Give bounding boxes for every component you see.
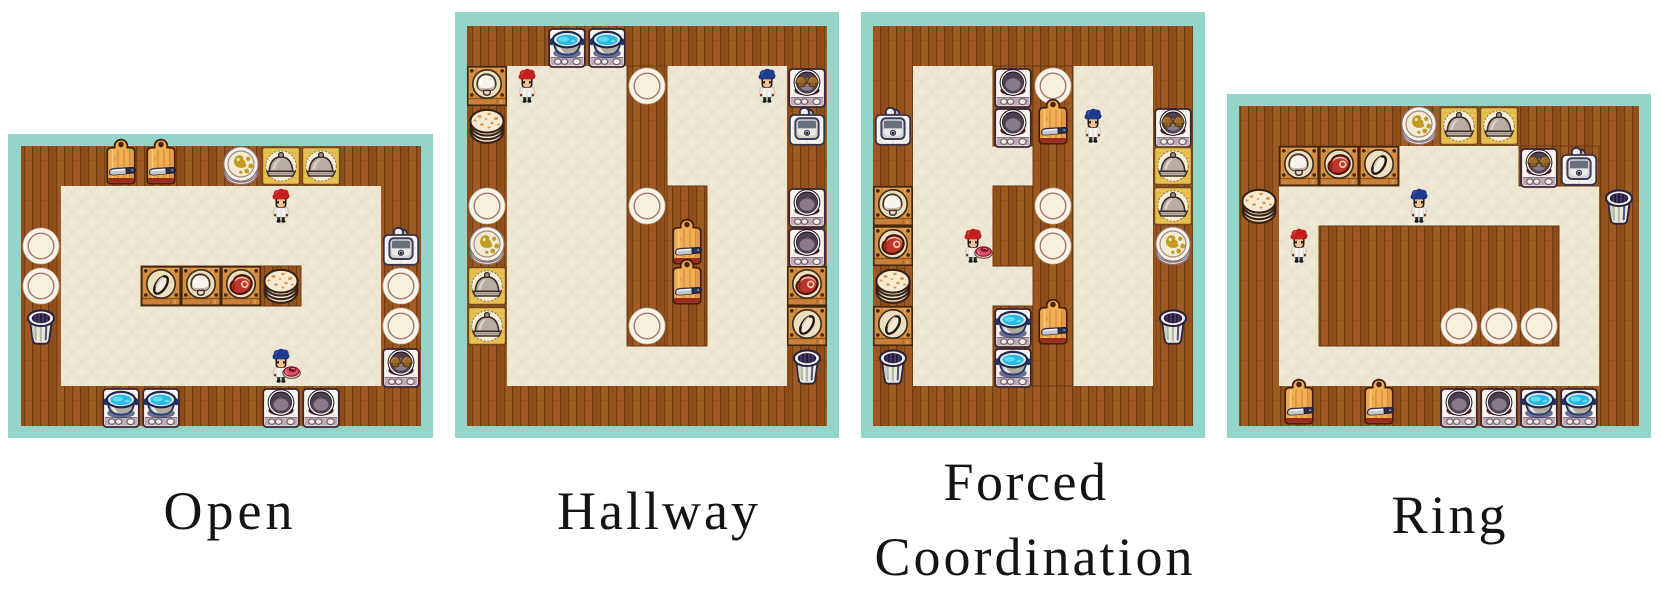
svg-text:Open: Open	[164, 481, 297, 541]
svg-text:Coordination: Coordination	[875, 527, 1196, 587]
svg-text:Ring: Ring	[1391, 485, 1508, 545]
svg-text:Hallway: Hallway	[557, 481, 761, 541]
svg-text:Forced: Forced	[944, 452, 1109, 512]
